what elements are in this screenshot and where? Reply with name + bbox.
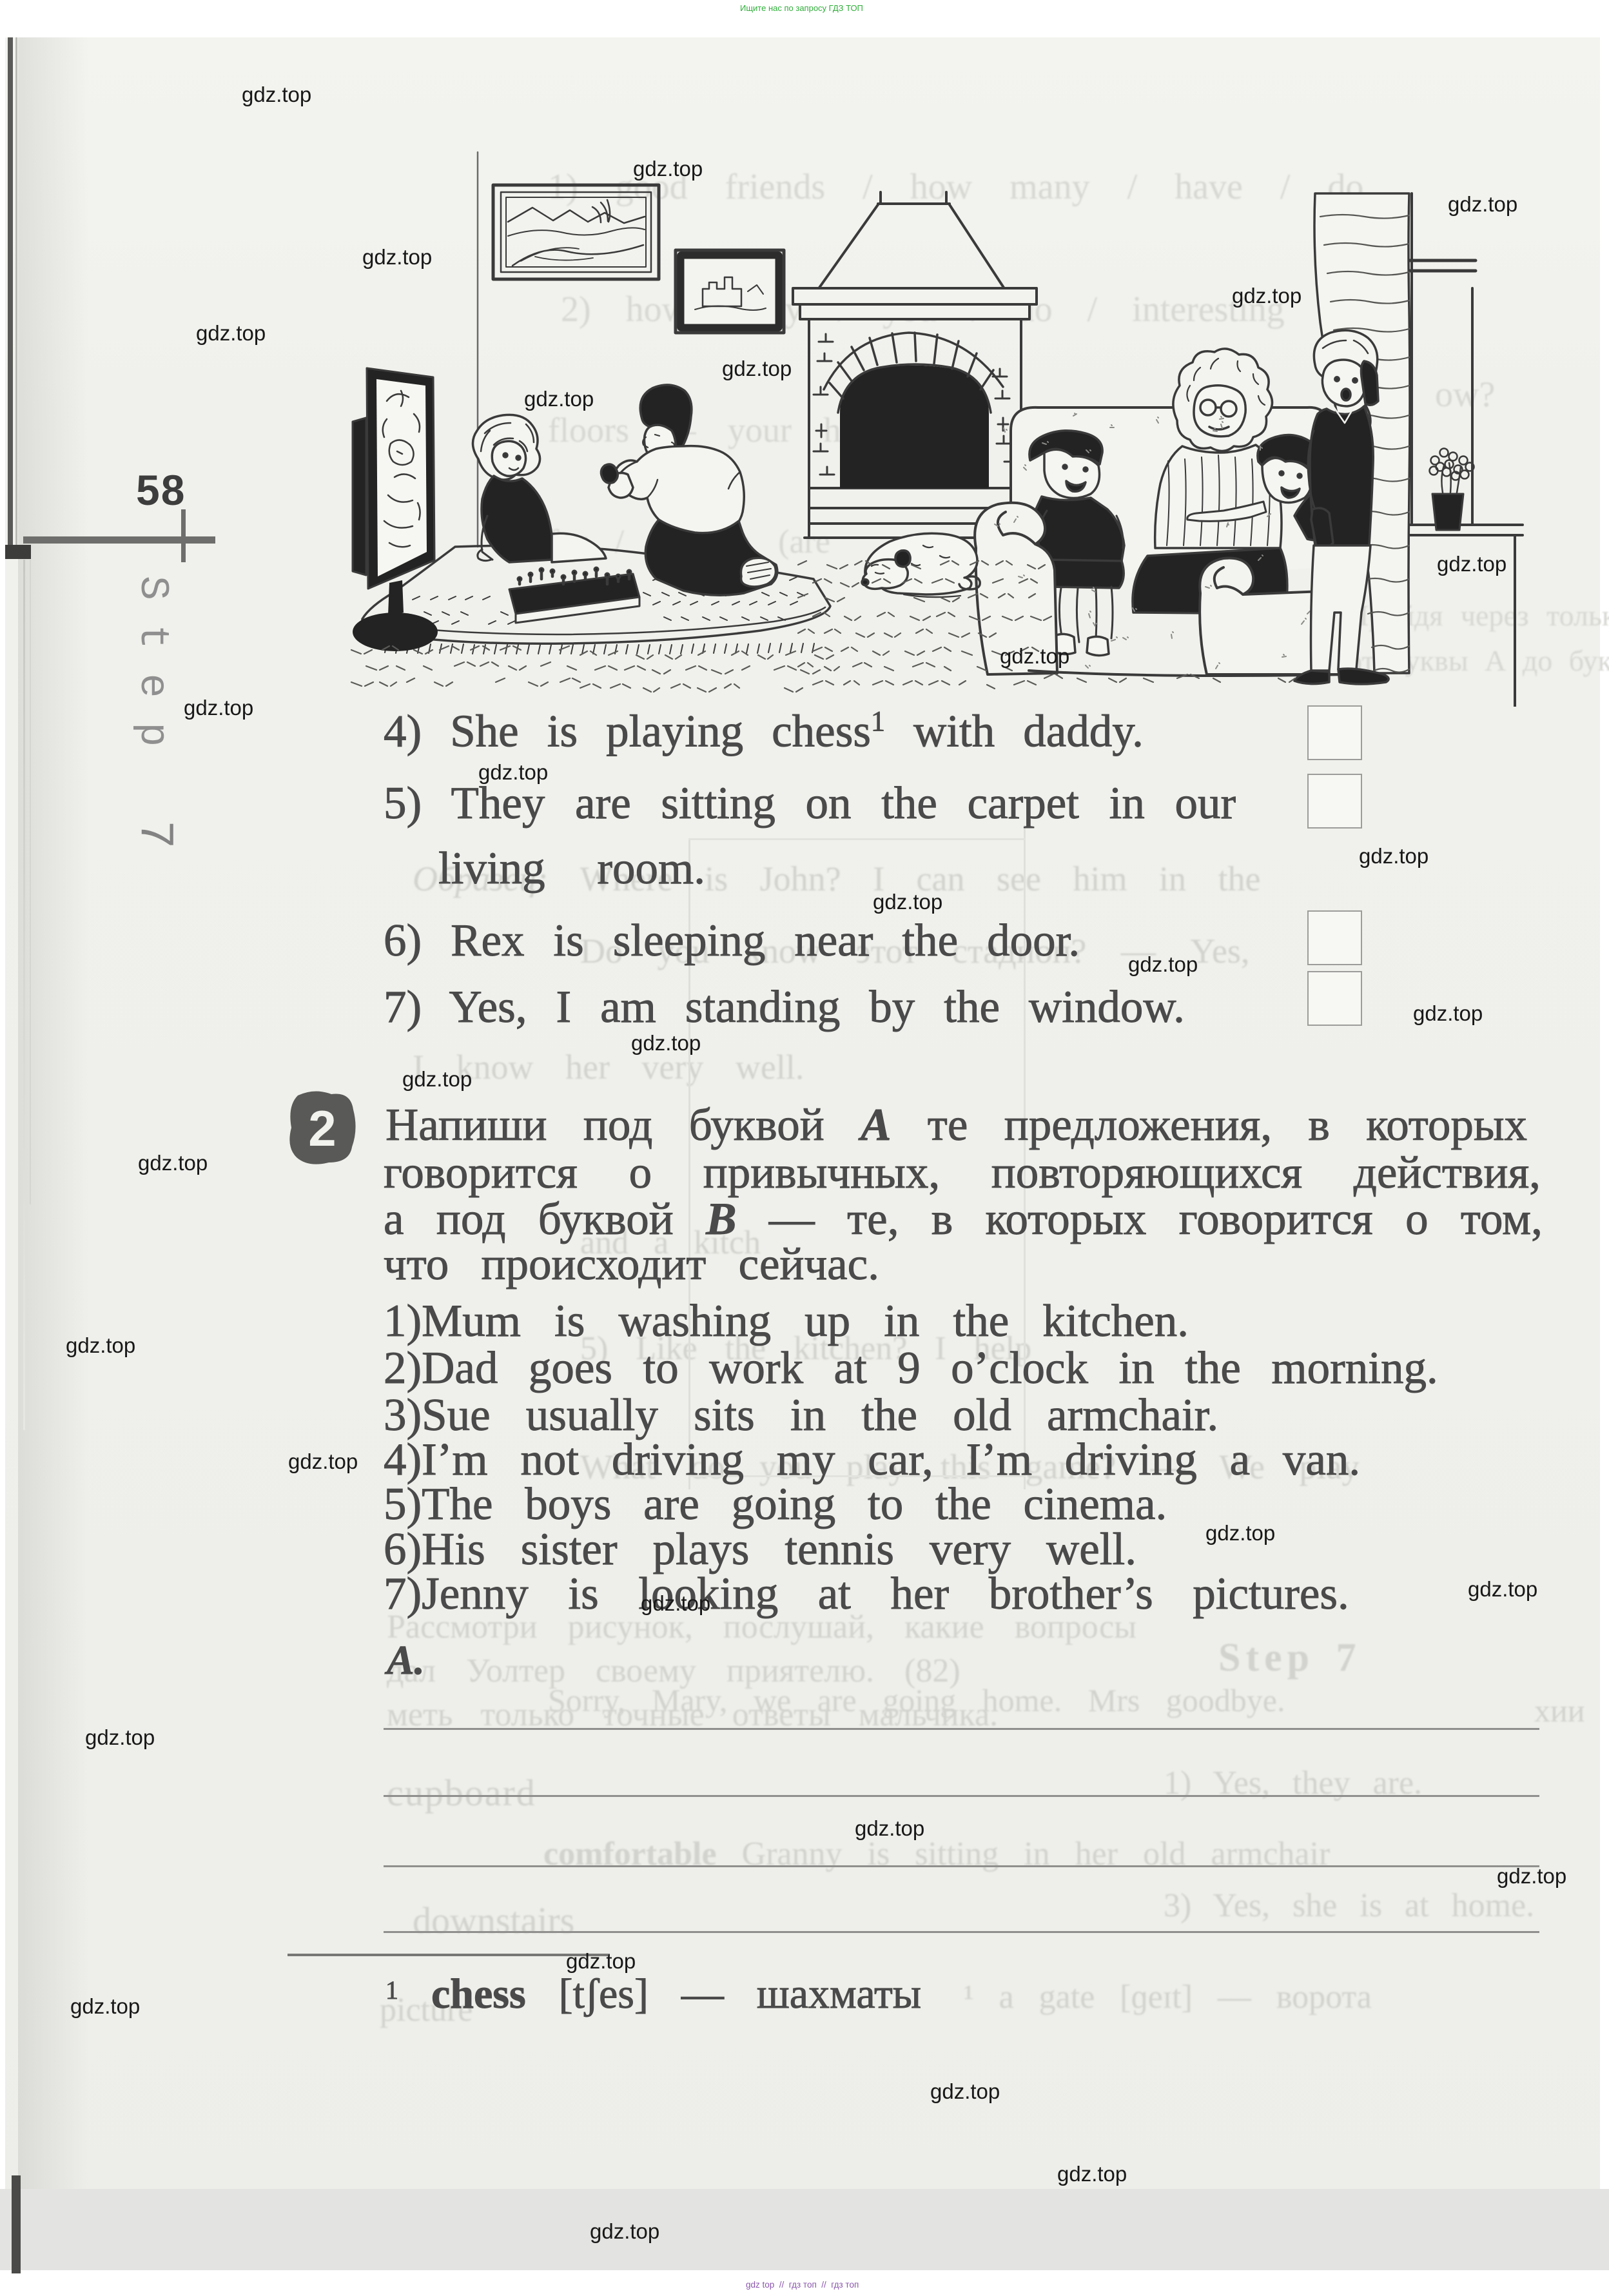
svg-text:2: 2 bbox=[308, 1100, 336, 1157]
